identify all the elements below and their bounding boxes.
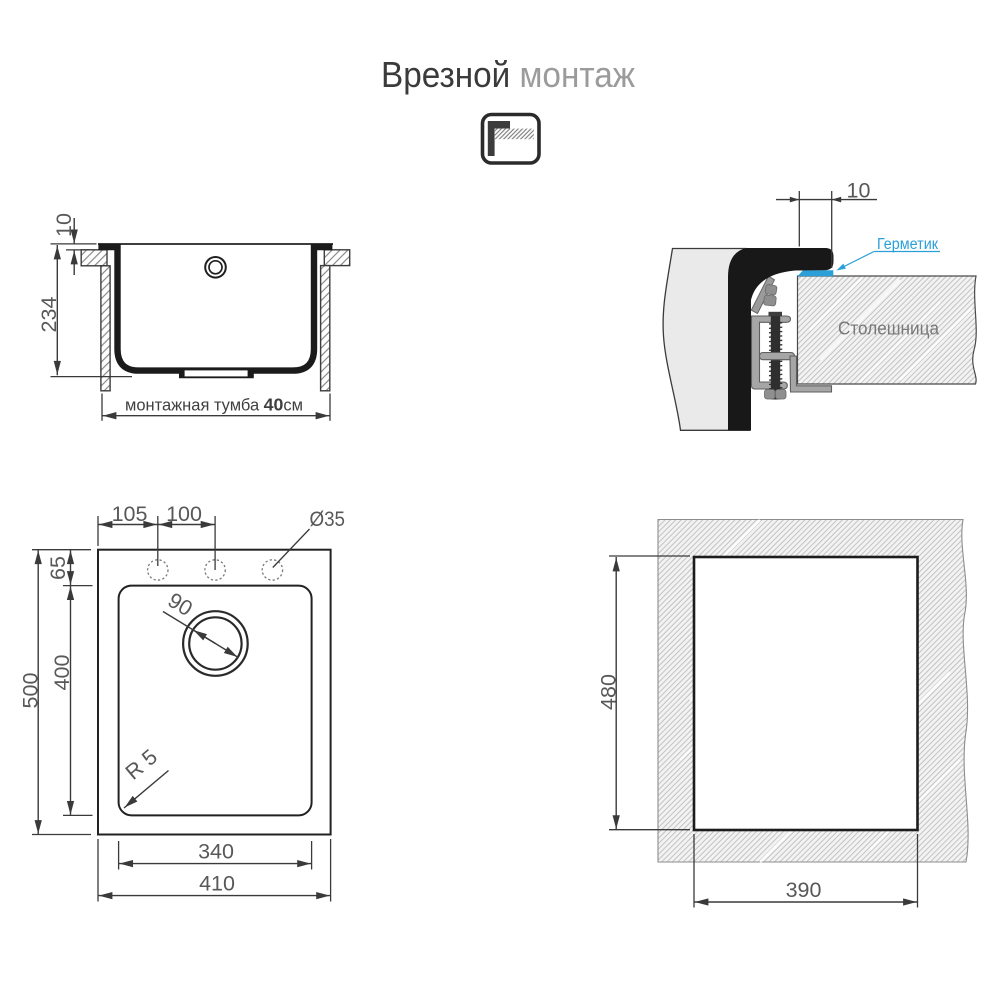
svg-text:410: 410 [199, 872, 235, 896]
svg-text:Герметик: Герметик [877, 236, 938, 253]
svg-text:10: 10 [52, 213, 76, 237]
svg-text:65: 65 [46, 556, 70, 580]
svg-text:105: 105 [112, 502, 148, 526]
svg-text:10: 10 [847, 179, 871, 203]
svg-text:340: 340 [198, 840, 234, 864]
svg-text:Ø35: Ø35 [310, 507, 346, 531]
svg-text:400: 400 [50, 655, 74, 691]
svg-text:234: 234 [37, 297, 61, 333]
svg-text:480: 480 [597, 674, 621, 710]
svg-text:390: 390 [786, 878, 822, 902]
svg-text:Врезной монтаж: Врезной монтаж [381, 54, 635, 95]
svg-text:100: 100 [166, 502, 202, 526]
svg-text:монтажная тумба 40см: монтажная тумба 40см [125, 395, 303, 415]
svg-text:Столешница: Столешница [838, 319, 940, 339]
svg-text:500: 500 [19, 673, 43, 709]
